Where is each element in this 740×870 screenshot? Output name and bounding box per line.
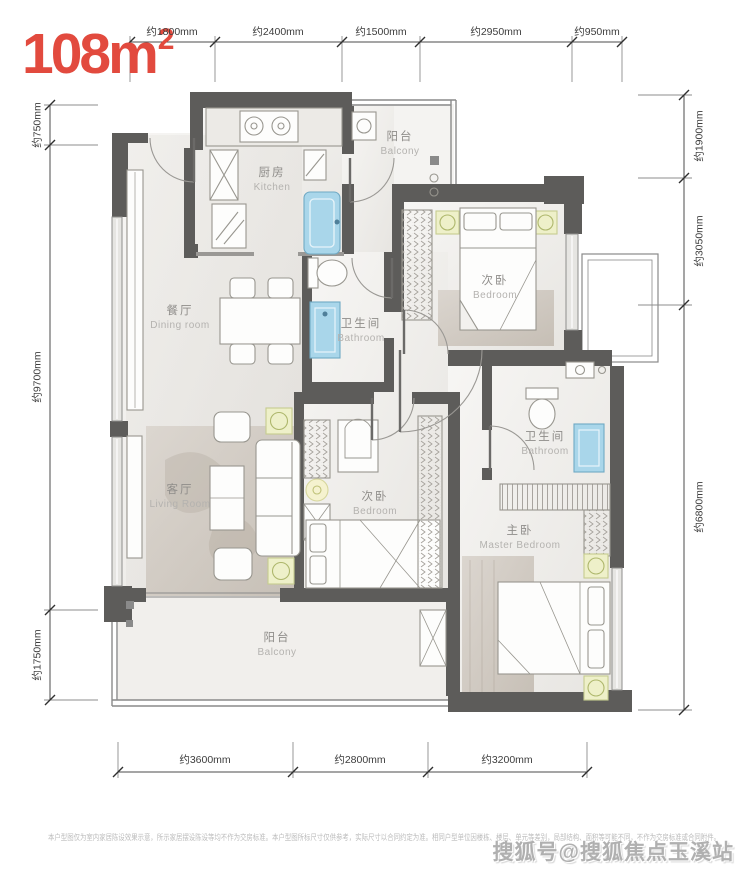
bedroom-top-furniture: [402, 208, 557, 330]
closet-column: [418, 416, 442, 588]
wardrobe: [402, 210, 432, 320]
storage-cabinet: [420, 610, 446, 666]
kitchen-sink: [304, 192, 340, 254]
dim-left-1: 约750mm: [30, 102, 45, 148]
floor-lamp: [306, 479, 328, 501]
washing-machine-icon: [352, 112, 376, 140]
double-bed: [460, 208, 536, 330]
dim-right-3: 约6800mm: [692, 481, 707, 532]
wall-switch: [430, 156, 439, 165]
dim-bottom-3: 约3200mm: [481, 752, 532, 767]
wall-switch: [126, 601, 134, 609]
range-hood-icon: [304, 150, 326, 180]
dim-top-3: 约1500mm: [355, 24, 406, 39]
dim-left-3: 约1750mm: [30, 629, 45, 680]
sofa: [256, 440, 300, 556]
floorplan-page: 108m2 约1800mm 约2400mm 约1500mm 约2950mm 约9…: [0, 0, 740, 870]
walkin-closet: [500, 484, 610, 510]
shower-icon: [310, 302, 340, 358]
area-value: 108m: [22, 22, 156, 86]
vanity-sink: [566, 362, 594, 378]
walkin-closet: [584, 510, 610, 556]
shower-icon: [574, 424, 604, 472]
lower-cabinet: [212, 204, 246, 248]
floor-plan-drawing: [0, 0, 740, 870]
dim-bottom-1: 约3600mm: [179, 752, 230, 767]
dim-left-2: 约9700mm: [30, 351, 45, 402]
dim-top-5: 约950mm: [574, 24, 620, 39]
dim-top-1: 约1800mm: [146, 24, 197, 39]
dim-top-2: 约2400mm: [252, 24, 303, 39]
armchair: [214, 412, 250, 442]
dining-table: [220, 298, 300, 344]
tv-cabinet: [127, 436, 142, 558]
wall-switch: [126, 620, 133, 627]
armchair: [214, 548, 252, 580]
toilet-icon: [308, 258, 347, 288]
dim-bottom-2: 约2800mm: [334, 752, 385, 767]
double-bed: [498, 582, 610, 674]
pantry-cabinet: [210, 150, 238, 200]
dim-top-4: 约2950mm: [470, 24, 521, 39]
closet: [304, 420, 330, 478]
stove-icon: [240, 111, 298, 142]
dim-right-1: 约1900mm: [692, 110, 707, 161]
dim-right-2: 约3050mm: [692, 215, 707, 266]
watermark: 搜狐号@搜狐焦点玉溪站: [493, 836, 734, 866]
